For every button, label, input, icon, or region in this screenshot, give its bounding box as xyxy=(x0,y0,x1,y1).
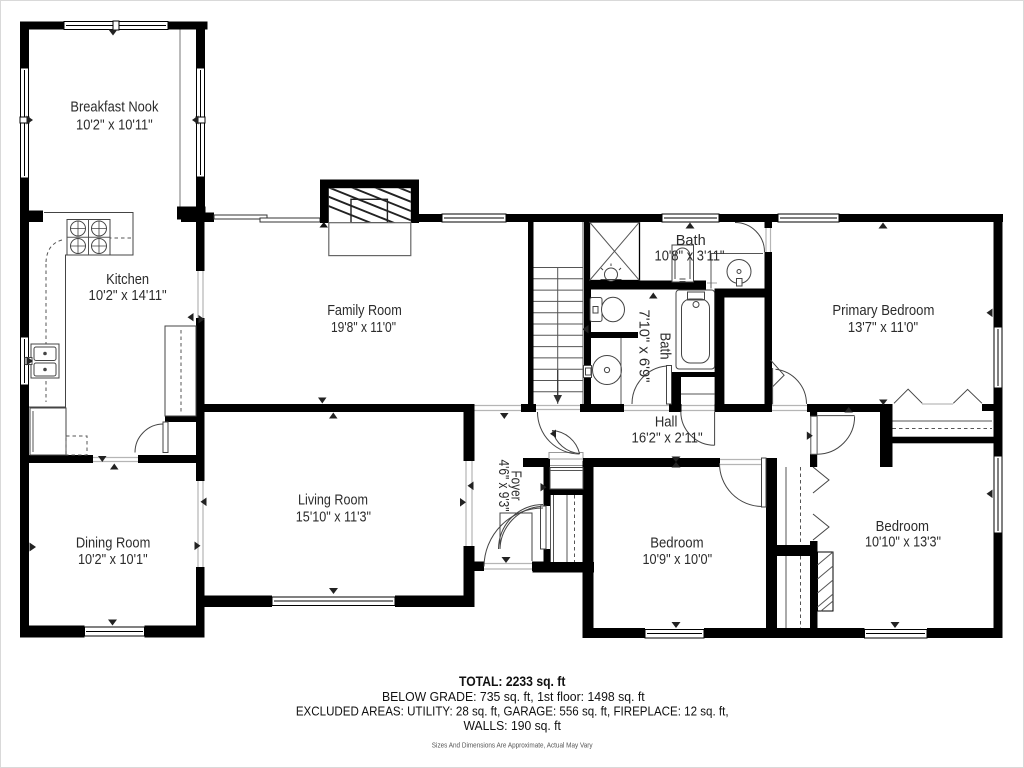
svg-text:19'8" x 11'0": 19'8" x 11'0" xyxy=(331,320,396,336)
svg-text:TOTAL: 2233 sq. ft: TOTAL: 2233 sq. ft xyxy=(459,673,566,689)
svg-text:Hall: Hall xyxy=(655,413,678,430)
svg-text:15'10" x 11'3": 15'10" x 11'3" xyxy=(296,510,371,526)
svg-text:4'6" x 9'3": 4'6" x 9'3" xyxy=(495,460,511,512)
svg-text:Primary Bedroom: Primary Bedroom xyxy=(832,302,934,319)
svg-text:WALLS: 190 sq. ft: WALLS: 190 sq. ft xyxy=(463,718,561,733)
svg-text:Living Room: Living Room xyxy=(298,491,368,508)
svg-text:Bath: Bath xyxy=(676,232,706,249)
svg-text:10'8" x 3'11": 10'8" x 3'11" xyxy=(655,249,725,265)
svg-text:10'2" x 10'11": 10'2" x 10'11" xyxy=(76,117,153,133)
svg-text:10'2" x 14'11": 10'2" x 14'11" xyxy=(89,288,167,304)
svg-text:13'7" x 11'0": 13'7" x 11'0" xyxy=(848,320,918,336)
svg-text:Sizes And Dimensions Are Appro: Sizes And Dimensions Are Approximate, Ac… xyxy=(432,740,593,749)
svg-text:EXCLUDED AREAS: UTILITY: 28 sq: EXCLUDED AREAS: UTILITY: 28 sq. ft, GARA… xyxy=(296,703,729,718)
svg-text:7'10" x 6'9": 7'10" x 6'9" xyxy=(636,310,652,383)
svg-text:Bedroom: Bedroom xyxy=(876,518,929,535)
svg-text:Family Room: Family Room xyxy=(327,302,402,319)
svg-text:10'9" x 10'0": 10'9" x 10'0" xyxy=(643,552,713,568)
svg-text:10'10" x 13'3": 10'10" x 13'3" xyxy=(865,535,941,551)
svg-text:BELOW GRADE: 735 sq. ft, 1st f: BELOW GRADE: 735 sq. ft, 1st floor: 1498… xyxy=(382,689,645,704)
svg-text:Kitchen: Kitchen xyxy=(106,271,149,288)
svg-text:Bath: Bath xyxy=(657,333,674,360)
svg-text:Bedroom: Bedroom xyxy=(650,535,703,552)
svg-text:16'2" x 2'11": 16'2" x 2'11" xyxy=(632,431,703,447)
svg-text:Dining Room: Dining Room xyxy=(76,535,151,552)
svg-text:Breakfast Nook: Breakfast Nook xyxy=(70,99,158,116)
svg-text:10'2" x 10'1": 10'2" x 10'1" xyxy=(78,552,148,568)
